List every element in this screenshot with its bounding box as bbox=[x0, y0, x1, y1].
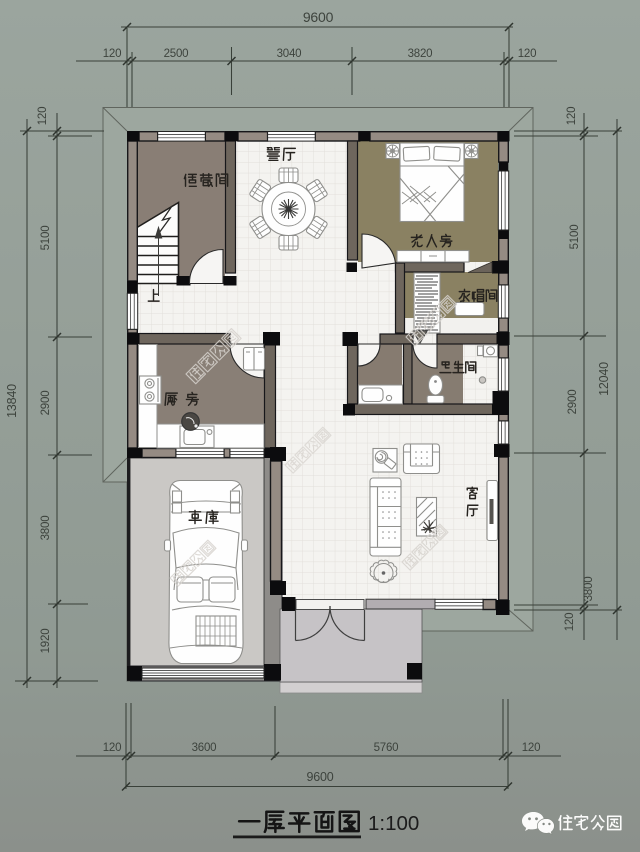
svg-text:120: 120 bbox=[103, 742, 122, 754]
svg-text:3800: 3800 bbox=[583, 577, 595, 602]
svg-text:5100: 5100 bbox=[569, 225, 581, 250]
svg-text:2900: 2900 bbox=[567, 390, 579, 415]
svg-text:2500: 2500 bbox=[164, 48, 189, 60]
svg-text:5760: 5760 bbox=[374, 742, 399, 754]
svg-text:9600: 9600 bbox=[306, 770, 333, 784]
svg-text:13840: 13840 bbox=[5, 384, 19, 418]
svg-text:3820: 3820 bbox=[408, 48, 433, 60]
svg-text:120: 120 bbox=[566, 107, 578, 126]
svg-text:120: 120 bbox=[518, 48, 537, 60]
svg-text:1920: 1920 bbox=[40, 629, 52, 654]
svg-text:9600: 9600 bbox=[303, 9, 334, 25]
svg-text:1:100: 1:100 bbox=[368, 812, 419, 835]
svg-text:2900: 2900 bbox=[40, 391, 52, 416]
svg-text:120: 120 bbox=[37, 107, 49, 126]
svg-text:3040: 3040 bbox=[277, 48, 302, 60]
svg-text:3800: 3800 bbox=[40, 516, 52, 541]
svg-text:5100: 5100 bbox=[40, 226, 52, 251]
svg-text:120: 120 bbox=[103, 48, 122, 60]
svg-text:120: 120 bbox=[564, 613, 576, 632]
svg-text:120: 120 bbox=[522, 742, 541, 754]
svg-text:3600: 3600 bbox=[192, 742, 217, 754]
svg-text:12040: 12040 bbox=[597, 362, 611, 396]
